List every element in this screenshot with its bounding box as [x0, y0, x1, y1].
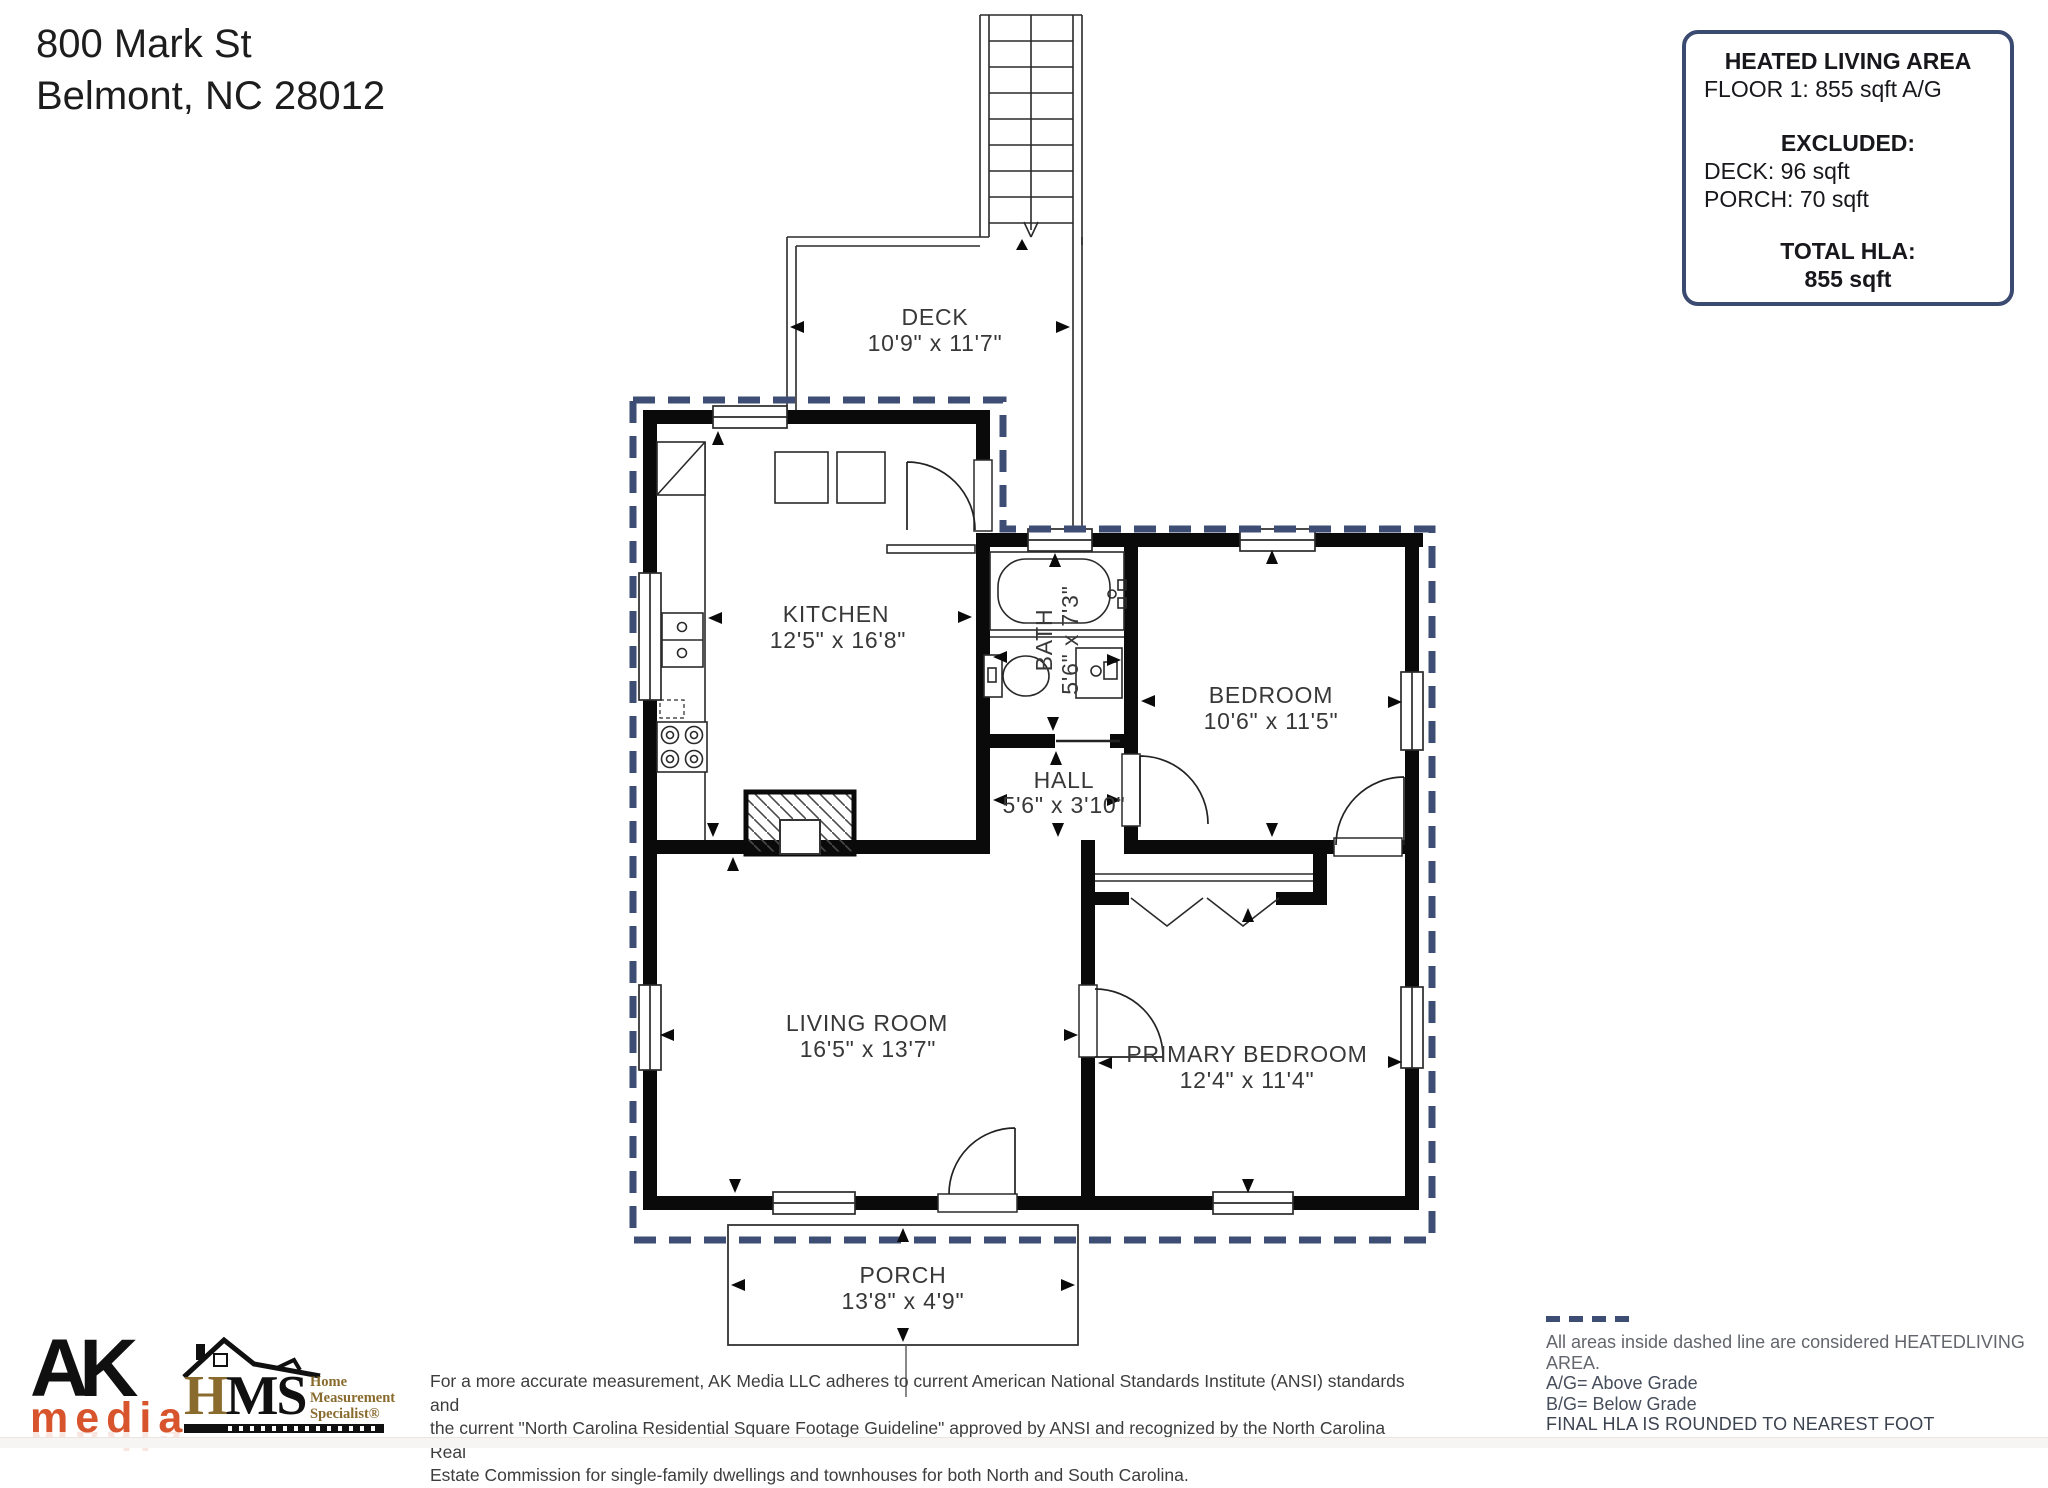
bedroom-right-window	[1401, 672, 1423, 750]
bedroom-dims: 10'6" x 11'5"	[1204, 708, 1339, 734]
stairs-direction-arrow	[1016, 239, 1028, 250]
ak-media-logo: AK media media	[30, 1334, 190, 1454]
chimney	[746, 792, 854, 854]
porch-label: PORCH	[859, 1262, 946, 1288]
disclaimer-line1: For a more accurate measurement, AK Medi…	[430, 1370, 1420, 1417]
front-door-swing	[949, 1128, 1015, 1194]
hall-dims: 5'6" x 3'10"	[1003, 792, 1126, 818]
bedroom-rear-door-swing	[1336, 777, 1404, 845]
kitchen-dims: 12'5" x 16'8"	[770, 627, 907, 653]
bath-label: BATH	[1031, 609, 1057, 672]
disclaimer-line3: Estate Commission for single-family dwel…	[430, 1464, 1420, 1488]
primary-bottom-window	[1213, 1192, 1293, 1214]
hms-acronym: HMS	[184, 1368, 306, 1424]
deck-outline	[787, 237, 1082, 531]
bifold-door-left	[1131, 898, 1203, 926]
hms-logo: HMS Home Measurement Specialist®	[182, 1332, 397, 1436]
kitchen-island-2	[837, 452, 885, 503]
kitchen-top-window	[713, 406, 787, 428]
kitchen-left-window	[639, 573, 661, 700]
plan-legend: All areas inside dashed line are conside…	[1546, 1316, 2046, 1435]
living-bottom-window	[773, 1192, 855, 1214]
deck-door-swing	[907, 462, 975, 530]
living-room-label: LIVING ROOM	[786, 1010, 948, 1036]
deck-label: DECK	[901, 304, 968, 330]
dashed-line-sample	[1546, 1316, 1630, 1322]
legend-heated-note: All areas inside dashed line are conside…	[1546, 1332, 2046, 1373]
kitchen-island-1	[775, 452, 828, 503]
bedroom-label: BEDROOM	[1209, 682, 1333, 708]
ansi-disclaimer: For a more accurate measurement, AK Medi…	[430, 1370, 1420, 1488]
stove	[657, 722, 707, 772]
deck-dims: 10'9" x 11'7"	[868, 330, 1003, 356]
dishwasher	[660, 700, 684, 718]
legend-above-grade: A/G= Above Grade	[1546, 1373, 2046, 1394]
kitchen-sink	[662, 613, 703, 667]
kitchen-label: KITCHEN	[783, 601, 890, 627]
hall-label: HALL	[1034, 767, 1095, 793]
porch-dims: 13'8" x 4'9"	[842, 1288, 965, 1314]
hms-ruler-bar	[184, 1424, 384, 1433]
bedroom-hall-door-swing	[1140, 756, 1208, 824]
primary-bedroom-dims: 12'4" x 11'4"	[1180, 1067, 1315, 1093]
bath-dims: 5'6" x 7'3"	[1057, 585, 1083, 694]
floor-plan: DECK 10'9" x 11'7" KITCHEN 12'5" x 16'8"…	[0, 0, 2048, 1447]
primary-right-window	[1401, 987, 1423, 1068]
footer-divider	[0, 1437, 2048, 1448]
refrigerator	[657, 442, 705, 495]
kitchen-bar	[887, 545, 975, 553]
legend-below-grade: B/G= Below Grade	[1546, 1394, 2046, 1415]
living-left-window	[639, 985, 661, 1070]
legend-rounding-note: FINAL HLA IS ROUNDED TO NEAREST FOOT	[1546, 1414, 2046, 1435]
living-room-dims: 16'5" x 13'7"	[800, 1036, 937, 1062]
stairs	[980, 15, 1082, 250]
hms-tagline: Home Measurement Specialist®	[310, 1374, 395, 1422]
primary-bedroom-label: PRIMARY BEDROOM	[1126, 1041, 1367, 1067]
